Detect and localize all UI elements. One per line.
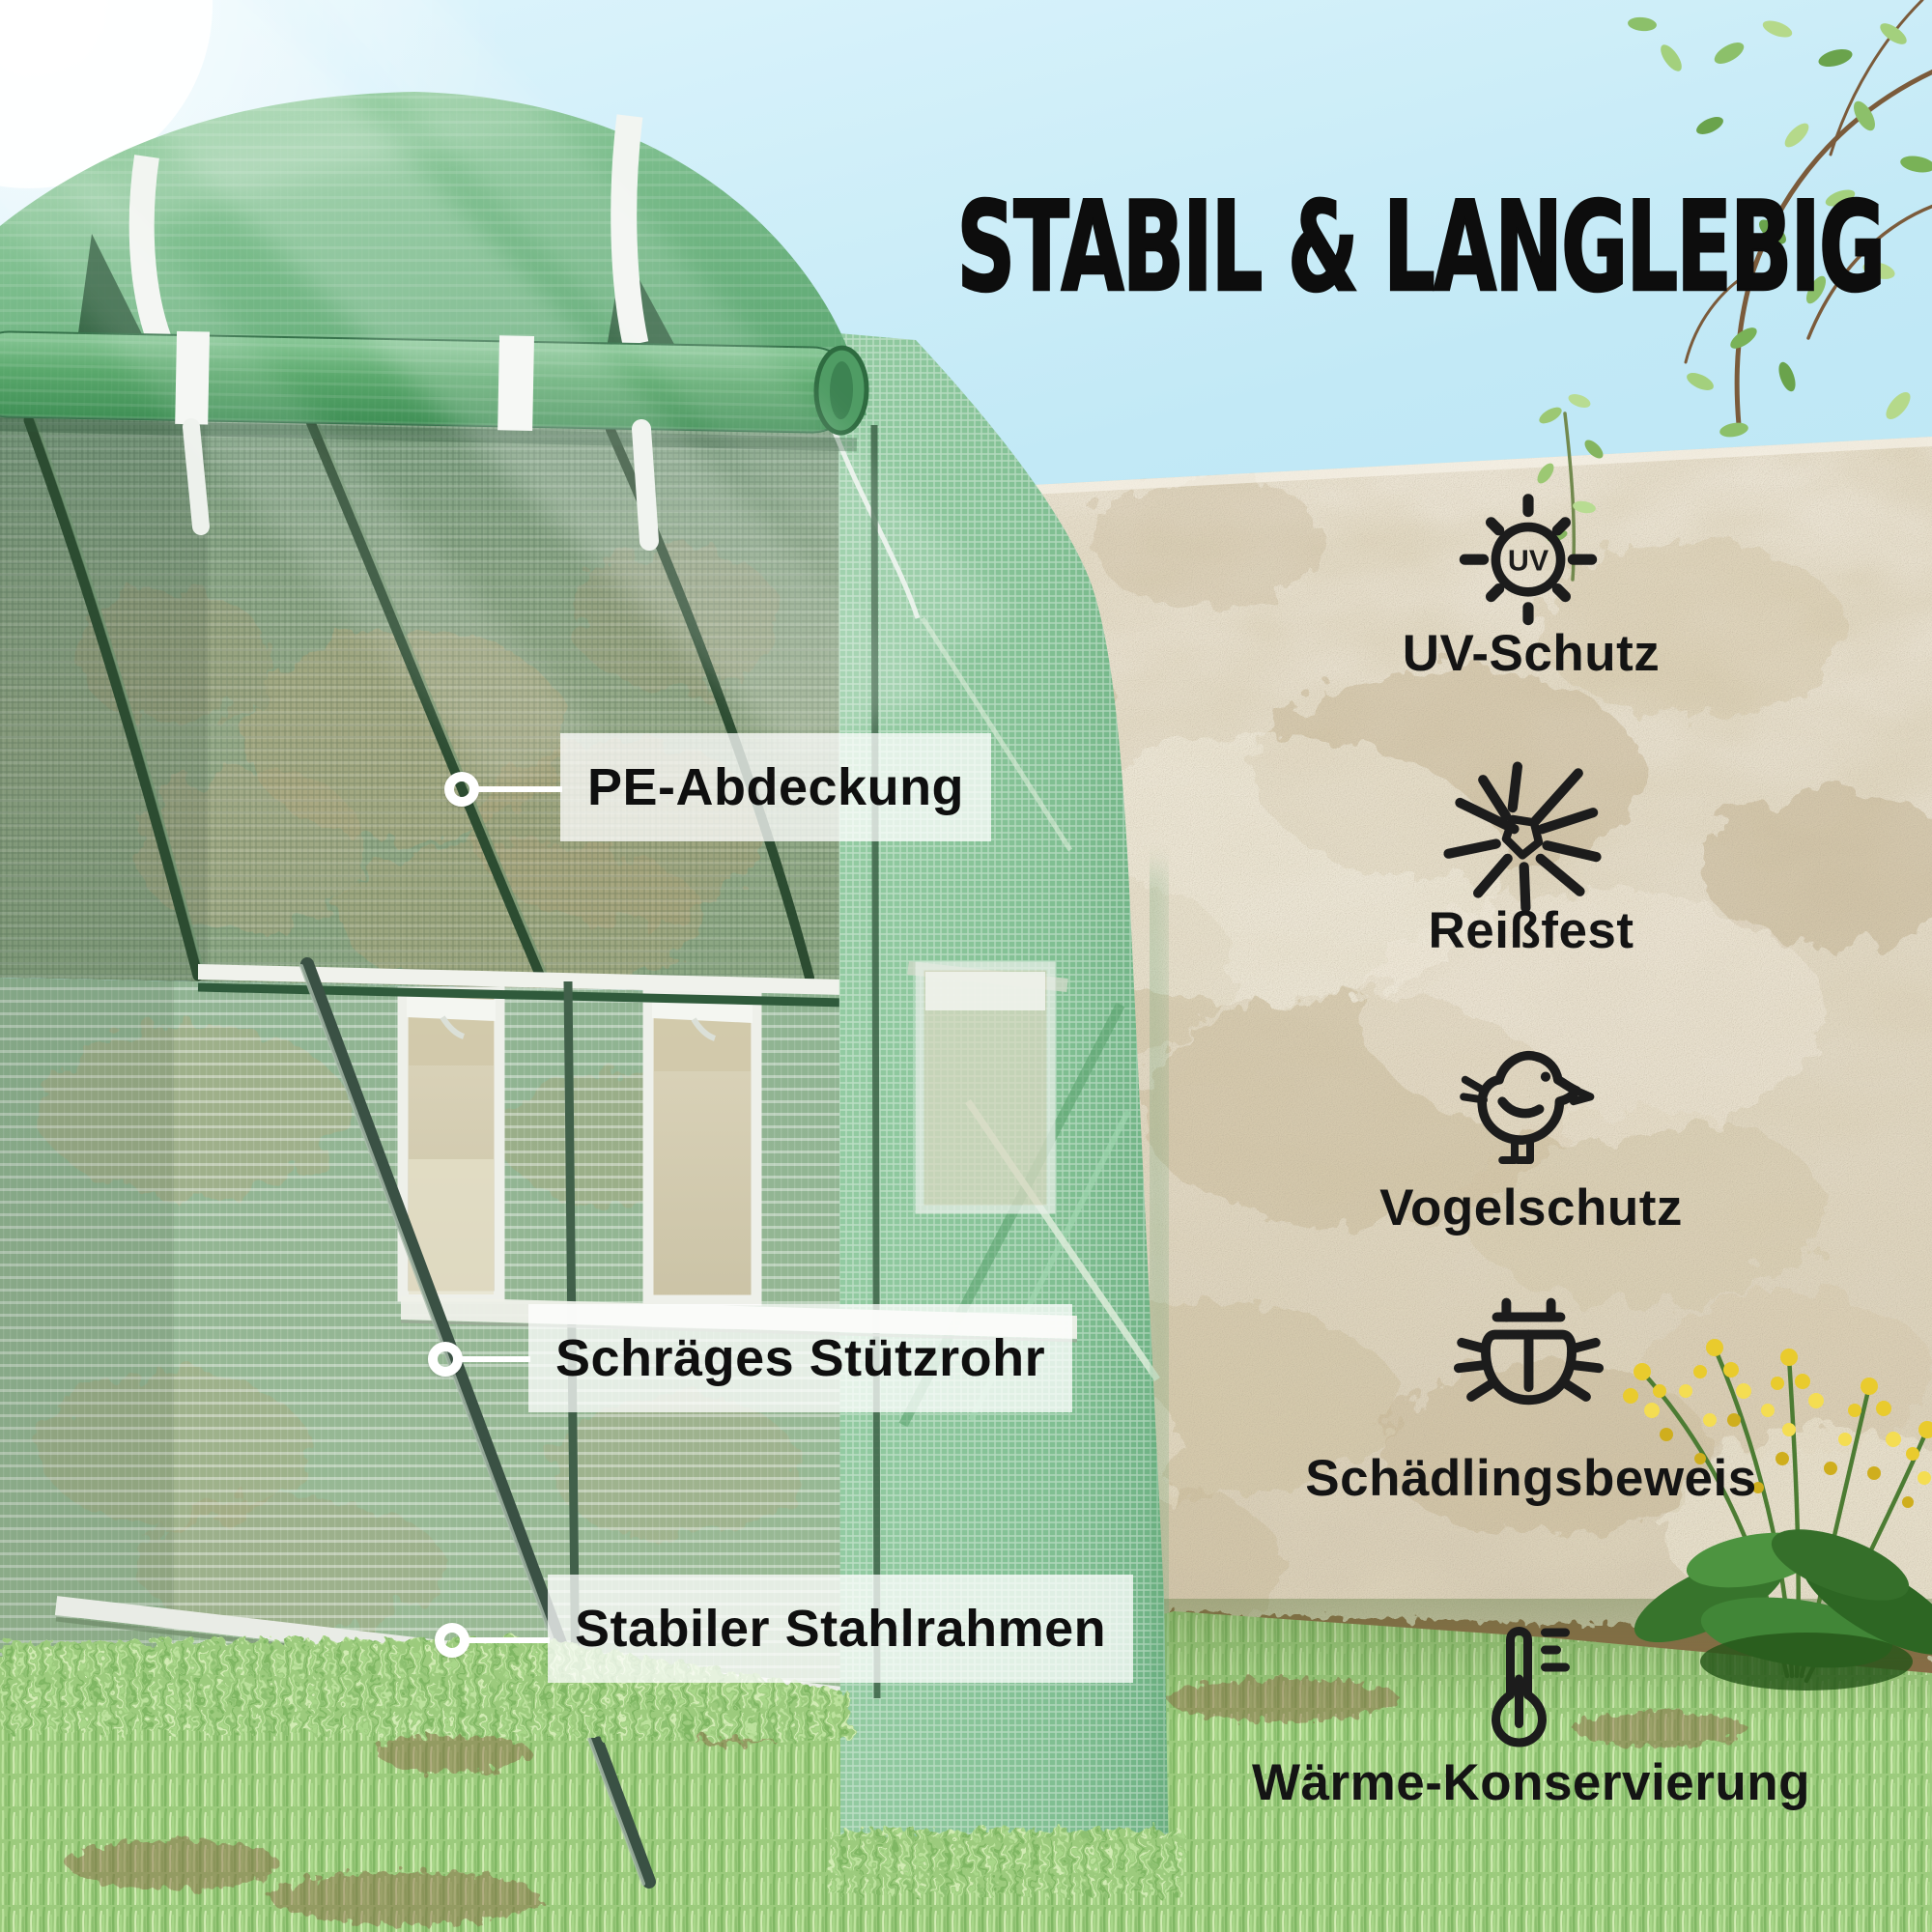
callout-label: PE-Abdeckung: [587, 757, 964, 817]
feature-label-bird: Vogelschutz: [1000, 1179, 1932, 1237]
page-title: STABIL & LANGLEBIG: [956, 176, 1884, 320]
callout-line: [468, 1637, 550, 1643]
callout-support-tube: Schräges Stützrohr: [528, 1304, 1072, 1412]
uv-badge-text: UV: [1508, 544, 1549, 577]
feature-label-pest: Schädlingsbeweis: [1000, 1449, 1932, 1508]
greenhouse-window: [648, 993, 756, 1300]
feature-label-heat: Wärme-Konservierung: [1000, 1753, 1932, 1812]
callout-marker: [428, 1342, 463, 1377]
callout-line: [477, 786, 562, 792]
product-infographic: STABIL & LANGLEBIG PE-Abdeckung Schräges…: [0, 0, 1932, 1932]
callout-label: Schräges Stützrohr: [555, 1328, 1045, 1388]
callout-line: [461, 1356, 530, 1362]
callout-marker: [444, 772, 479, 807]
callout-steel-frame: Stabiler Stahlrahmen: [548, 1575, 1133, 1683]
feature-label-uv: UV-Schutz: [1000, 624, 1932, 683]
feature-label-tear: Reißfest: [1000, 901, 1932, 960]
callout-pe-cover: PE-Abdeckung: [560, 733, 991, 841]
uv-sun-icon: UV: [1451, 479, 1605, 634]
bird-icon: [1453, 1029, 1607, 1183]
callout-marker: [435, 1623, 469, 1658]
tear-resistant-icon: [1440, 753, 1605, 918]
callout-label: Stabiler Stahlrahmen: [575, 1599, 1106, 1659]
thermometer-icon: [1454, 1604, 1599, 1748]
bug-icon: [1449, 1296, 1608, 1456]
